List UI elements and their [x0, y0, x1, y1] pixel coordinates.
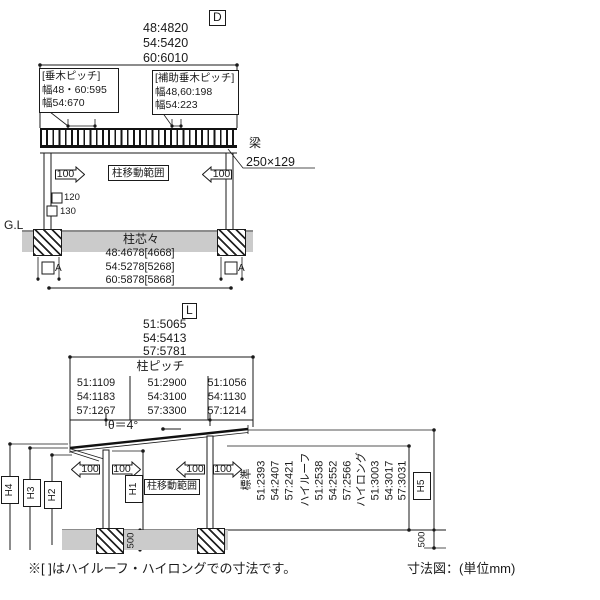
l-depth-54: 54:5413 [143, 332, 186, 346]
d-width-54: 54:5420 [143, 36, 188, 51]
rafter-pitch-title: [垂木ピッチ] [42, 70, 116, 84]
beam-label: 梁 [249, 137, 261, 151]
l-column-move-range: 柱移動範囲 [144, 479, 200, 495]
d-move-arrow-left: 100 [202, 166, 232, 183]
h4-label: H4 [1, 476, 19, 504]
d-rafter-pitch-leaders [50, 112, 183, 129]
pitch-rear-51: 51:1056 [202, 376, 252, 390]
h5-label: H5 [413, 472, 431, 500]
height-highroof-51: 51:2538 [314, 416, 327, 546]
pitch-middle-column: 51:2900 54:3100 57:3300 [138, 376, 196, 418]
l-front-arrow-left: 100 [71, 461, 100, 478]
d-move-arrow-right: 100 [55, 166, 85, 183]
h1-label: H1 [125, 475, 143, 503]
l-front-footing-depth: 500 [126, 521, 137, 561]
height-standard-57: 57:2421 [284, 416, 297, 546]
aux-rafter-pitch-title: [補助垂木ピッチ] [155, 72, 236, 86]
pitch-front-column: 51:1109 54:1183 57:1267 [66, 376, 126, 418]
d-section-marker-left: A [55, 263, 62, 275]
height-highlong-57: 57:3031 [397, 416, 410, 546]
l-middle-arrow-right-value: 100 [213, 461, 233, 478]
pitch-middle-51: 51:2900 [138, 376, 196, 390]
post-center-54: 54:5278[5268] [94, 261, 186, 275]
l-front-arrow-left-value: 100 [80, 461, 100, 478]
d-overall-widths: 48:4820 54:5420 60:6010 [143, 21, 188, 66]
height-highroof-57: 57:2566 [342, 416, 355, 546]
l-front-footing [96, 528, 124, 554]
d-width-48: 48:4820 [143, 21, 188, 36]
beam-size: 250×129 [246, 155, 295, 169]
d-ground-level-label: G.L [4, 219, 23, 233]
l-middle-footing [197, 528, 225, 554]
l-middle-arrow-left: 100 [176, 461, 205, 478]
d-rafter-band [40, 128, 237, 148]
aux-rafter-pitch-row1: 幅48,60:198 [155, 86, 236, 100]
height-standard-54: 54:2407 [270, 416, 283, 546]
drawing-caption: 寸法図：(単位mm) [407, 562, 515, 577]
d-width-60: 60:6010 [143, 51, 188, 66]
d-right-footing [217, 229, 246, 256]
l-depth-51: 51:5065 [143, 318, 186, 332]
height-highroof-54: 54:2552 [328, 416, 341, 546]
aux-rafter-pitch-note: [補助垂木ピッチ] 幅48,60:198 幅54:223 [152, 70, 239, 115]
height-type-highroof: ハイルーフ [300, 415, 313, 545]
pitch-middle-54: 54:3100 [138, 390, 196, 404]
l-middle-arrow-right: 100 [213, 461, 242, 478]
pitch-middle-57: 57:3300 [138, 404, 196, 418]
rafter-pitch-row1: 幅48・60:595 [42, 84, 116, 98]
height-standard-51: 51:2393 [256, 416, 269, 546]
l-rear-footing-depth: 500 [417, 520, 428, 560]
pitch-front-57: 57:1267 [66, 404, 126, 418]
d-move-arrow-left-value: 100 [211, 166, 232, 183]
height-highlong-51: 51:3003 [370, 416, 383, 546]
pitch-rear-column: 51:1056 54:1130 57:1214 [202, 376, 252, 418]
view-label-d: D [209, 10, 226, 26]
d-section-marker-right: A [238, 263, 245, 275]
d-move-arrow-right-value: 100 [55, 166, 76, 183]
d-left-footing [33, 229, 62, 256]
footnote: ※[ ]はハイルーフ・ハイロングでの寸法です。 [28, 562, 296, 577]
post-center-48: 48:4678[4668] [94, 247, 186, 261]
height-type-highlong: ハイロング [356, 415, 369, 545]
h3-label: H3 [23, 479, 41, 507]
post-pitch-title: 柱ピッチ [128, 360, 193, 374]
post-center-60: 60:5878[5868] [94, 274, 186, 288]
height-highlong-54: 54:3017 [384, 416, 397, 546]
roof-angle-label: θ＝4° [108, 419, 138, 433]
l-angle-leader [161, 427, 181, 431]
pitch-front-51: 51:1109 [66, 376, 126, 390]
l-middle-arrow-left-value: 100 [185, 461, 205, 478]
pitch-front-54: 54:1183 [66, 390, 126, 404]
pitch-rear-54: 54:1130 [202, 390, 252, 404]
d-column-move-range: 柱移動範囲 [108, 165, 169, 181]
post-centers-values: 48:4678[4668] 54:5278[5268] 60:5878[5868… [94, 247, 186, 288]
dimension-drawing: D 48:4820 54:5420 60:6010 [垂木ピッチ] 幅48・60… [0, 0, 600, 600]
rafter-pitch-note: [垂木ピッチ] 幅48・60:595 幅54:670 [39, 68, 119, 113]
column-width-dim: 120 [64, 193, 80, 204]
l-overall-depths: 51:5065 54:5413 57:5781 [143, 318, 186, 359]
post-centers-title: 柱芯々 [107, 233, 175, 247]
column-depth-dim: 130 [60, 207, 76, 218]
l-depth-57: 57:5781 [143, 345, 186, 359]
height-type-standard: 標準 [241, 415, 254, 545]
h2-label: H2 [44, 481, 62, 509]
rafter-pitch-row2: 幅54:670 [42, 97, 116, 111]
aux-rafter-pitch-row2: 幅54:223 [155, 99, 236, 113]
